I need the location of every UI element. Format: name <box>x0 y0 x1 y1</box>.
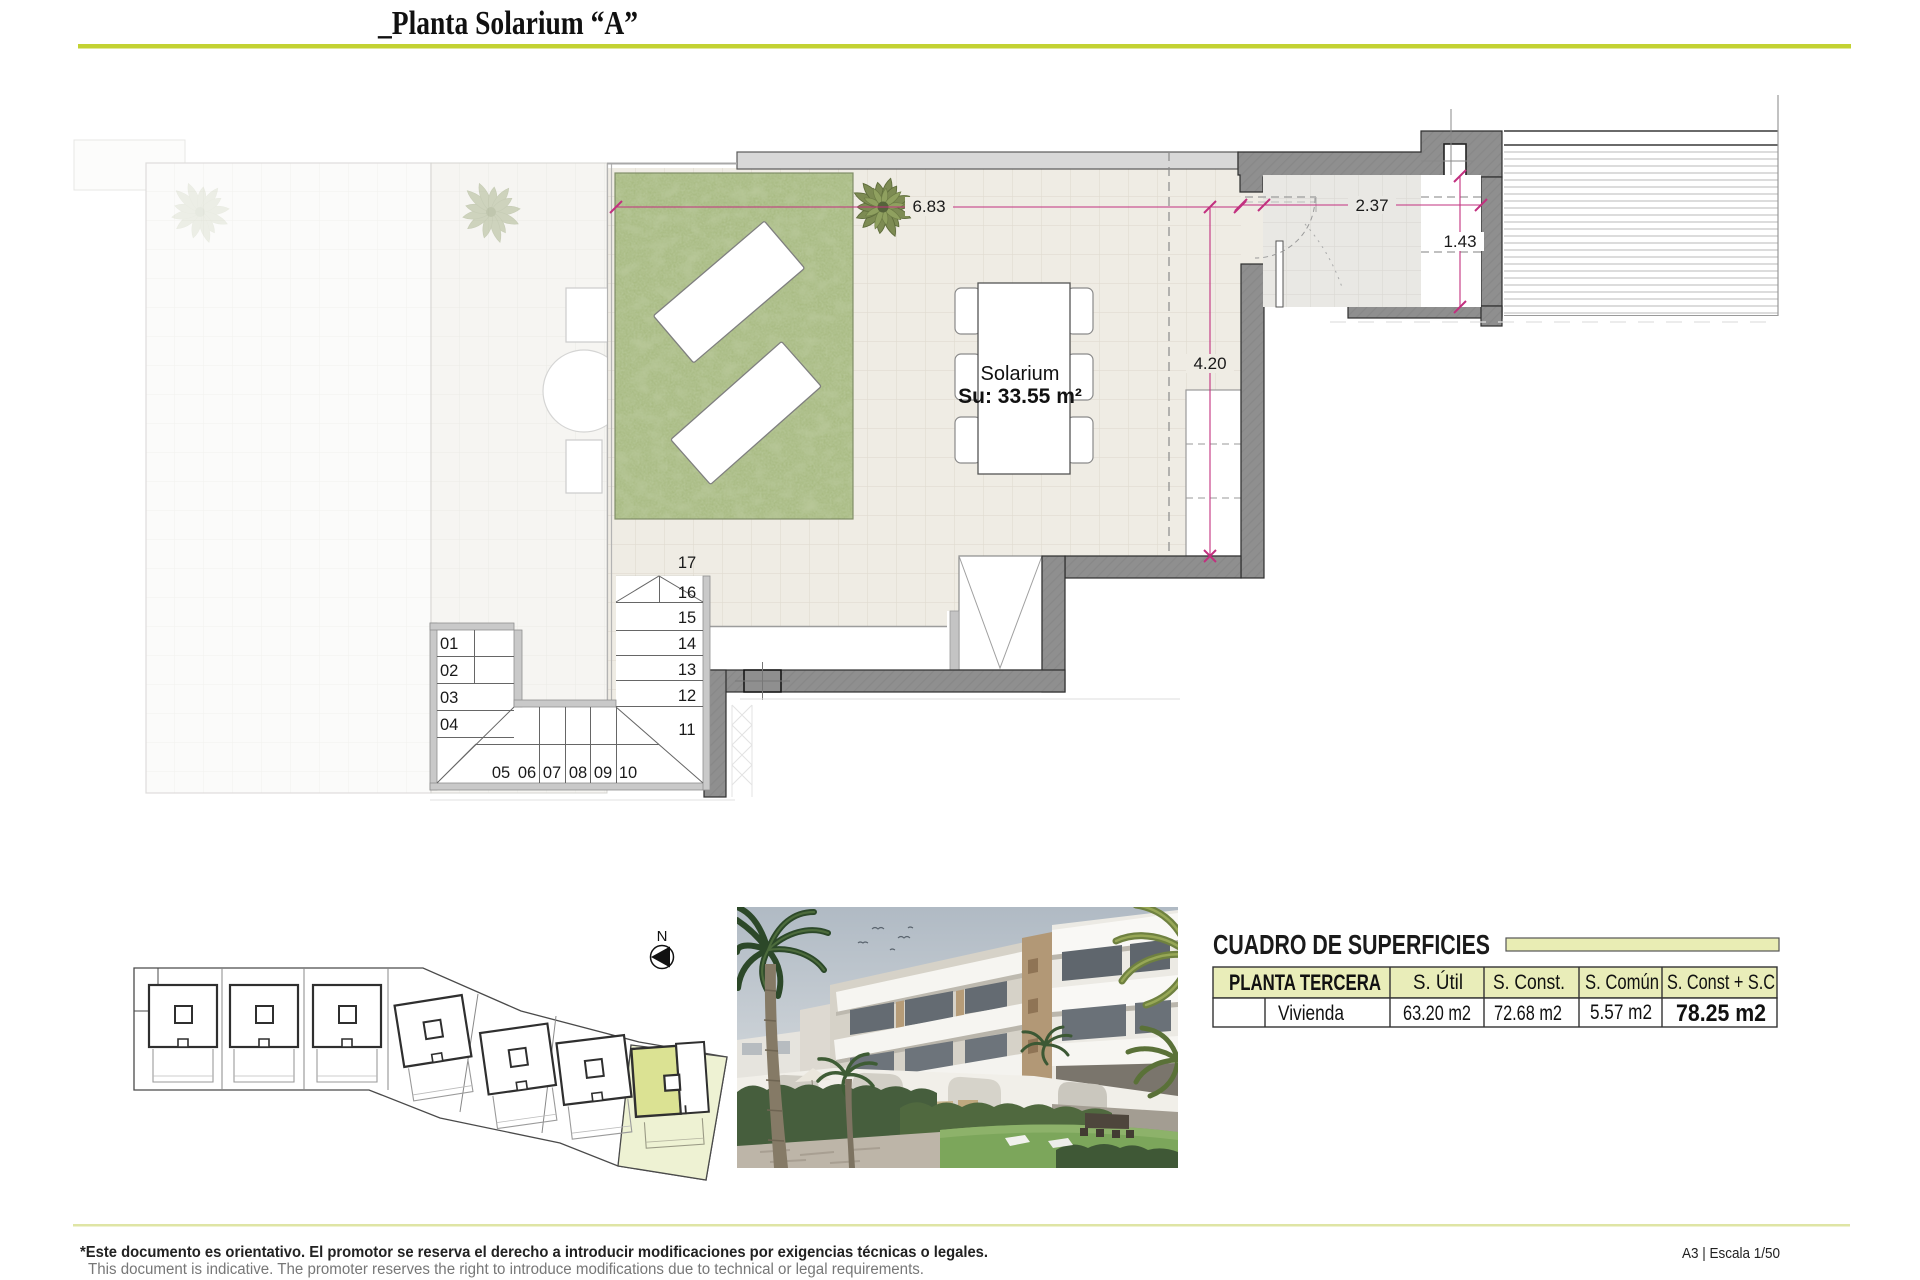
svg-text:13: 13 <box>678 661 696 679</box>
svg-text:S. Útil: S. Útil <box>1413 971 1463 994</box>
svg-text:N: N <box>657 928 668 945</box>
svg-text:01: 01 <box>440 635 458 653</box>
svg-text:CUADRO DE SUPERFICIES: CUADRO DE SUPERFICIES <box>1213 929 1490 960</box>
svg-text:17: 17 <box>678 554 696 572</box>
svg-text:Vivienda: Vivienda <box>1278 1002 1344 1025</box>
svg-text:6.83: 6.83 <box>912 197 945 216</box>
svg-text:S. Const + S.C: S. Const + S.C <box>1667 971 1775 994</box>
svg-text:16: 16 <box>678 584 696 602</box>
svg-text:05: 05 <box>492 764 510 782</box>
svg-text:78.25 m2: 78.25 m2 <box>1676 1000 1766 1027</box>
svg-text:This document is indicative. T: This document is indicative. The promote… <box>88 1261 924 1278</box>
svg-text:03: 03 <box>440 689 458 707</box>
svg-text:09: 09 <box>594 764 612 782</box>
svg-text:1.43: 1.43 <box>1443 232 1476 251</box>
svg-text:S. Común: S. Común <box>1585 971 1659 994</box>
svg-text:04: 04 <box>440 716 458 734</box>
svg-text:07: 07 <box>543 764 561 782</box>
svg-text:*Este documento es orientativo: *Este documento es orientativo. El promo… <box>80 1244 988 1261</box>
svg-text:11: 11 <box>678 721 695 739</box>
svg-text:14: 14 <box>678 635 696 653</box>
svg-text:06: 06 <box>518 764 536 782</box>
svg-text:PLANTA TERCERA: PLANTA TERCERA <box>1229 970 1381 995</box>
svg-text:12: 12 <box>678 687 696 705</box>
svg-text:72.68 m2: 72.68 m2 <box>1494 1002 1562 1025</box>
svg-text:Solarium: Solarium <box>981 363 1060 385</box>
svg-text:08: 08 <box>569 764 587 782</box>
svg-text:5.57 m2: 5.57 m2 <box>1590 1001 1652 1024</box>
svg-text:10: 10 <box>619 764 637 782</box>
svg-text:02: 02 <box>440 662 458 680</box>
svg-text:2.37: 2.37 <box>1355 196 1388 215</box>
svg-text:Su: 33.55 m²: Su: 33.55 m² <box>958 385 1082 408</box>
svg-text:A3 | Escala 1/50: A3 | Escala 1/50 <box>1682 1245 1780 1262</box>
svg-text:S. Const.: S. Const. <box>1493 971 1565 994</box>
svg-text:63.20 m2: 63.20 m2 <box>1403 1002 1471 1025</box>
svg-text:15: 15 <box>678 609 696 627</box>
svg-text:4.20: 4.20 <box>1193 354 1226 373</box>
svg-text:_Planta Solarium “A”: _Planta Solarium “A” <box>377 5 638 42</box>
